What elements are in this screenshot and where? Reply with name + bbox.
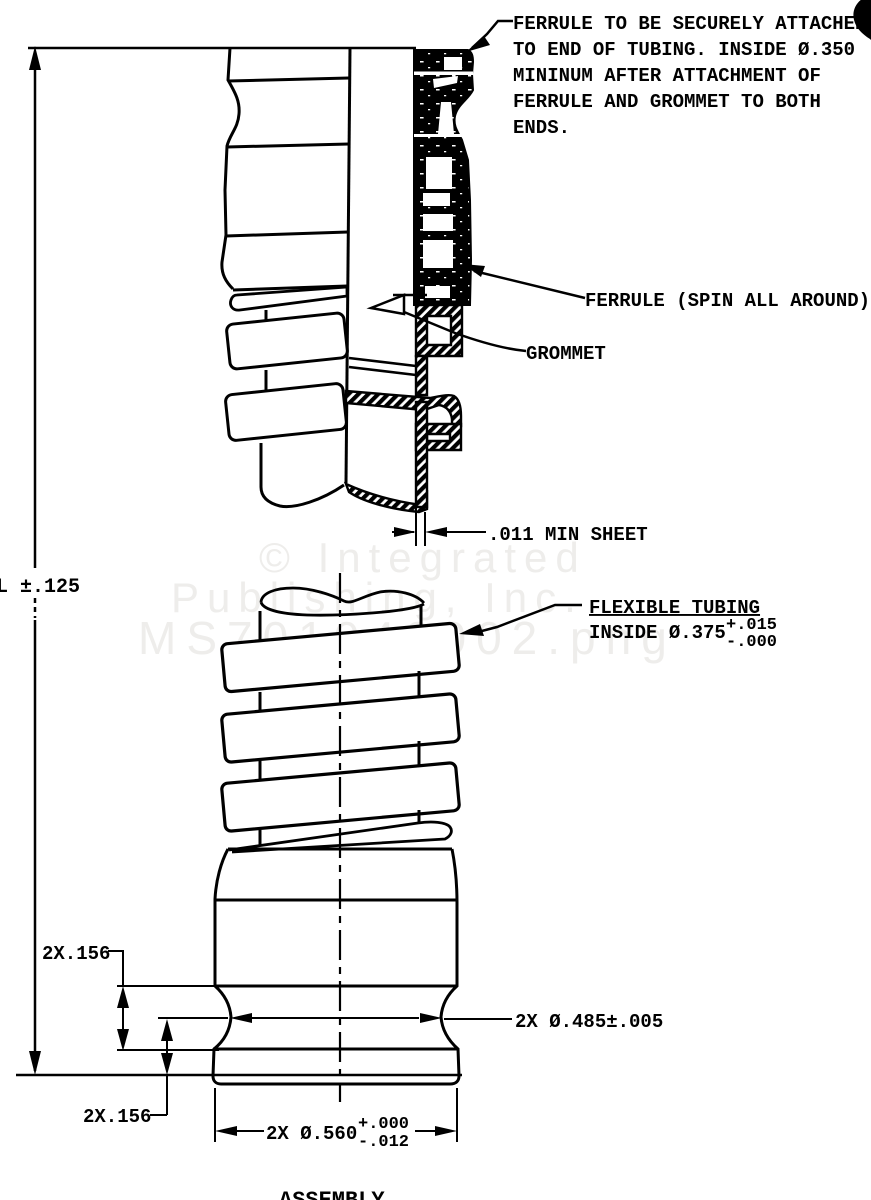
svg-text:INSIDE Ø.375: INSIDE Ø.375 xyxy=(589,622,726,644)
svg-text:TO END OF TUBING. INSIDE Ø.350: TO END OF TUBING. INSIDE Ø.350 xyxy=(513,39,855,61)
svg-text:FERRULE AND GROMMET TO BOTH: FERRULE AND GROMMET TO BOTH xyxy=(513,91,821,113)
svg-text:2X.156: 2X.156 xyxy=(42,943,110,965)
svg-text:GROMMET: GROMMET xyxy=(526,343,606,365)
svg-text:-.000: -.000 xyxy=(726,633,777,652)
svg-text:L ±.125: L ±.125 xyxy=(0,576,80,599)
svg-text:FERRULE (SPIN ALL AROUND): FERRULE (SPIN ALL AROUND) xyxy=(585,290,870,312)
svg-text:2X.156: 2X.156 xyxy=(83,1106,151,1128)
svg-text:-.012: -.012 xyxy=(358,1133,409,1152)
svg-text:2X Ø.485±.005: 2X Ø.485±.005 xyxy=(515,1011,663,1033)
svg-text:ENDS.: ENDS. xyxy=(513,117,570,139)
svg-text:2X Ø.560: 2X Ø.560 xyxy=(266,1123,357,1145)
svg-text:ASSEMBLY: ASSEMBLY xyxy=(279,1188,385,1200)
svg-text:MININUM AFTER ATTACHMENT OF: MININUM AFTER ATTACHMENT OF xyxy=(513,65,821,87)
svg-text:.011 MIN SHEET: .011 MIN SHEET xyxy=(488,524,648,546)
svg-text:FERRULE TO BE SECURELY ATTACHE: FERRULE TO BE SECURELY ATTACHED xyxy=(513,13,866,35)
svg-text:+.000: +.000 xyxy=(358,1115,409,1134)
